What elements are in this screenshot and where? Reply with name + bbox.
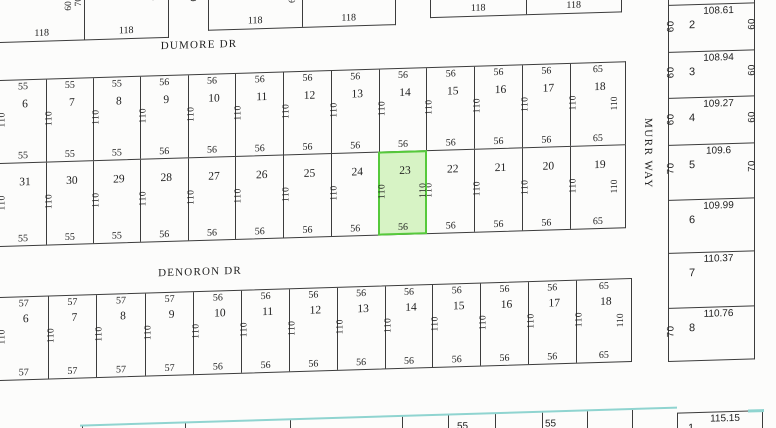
lot-number: 17 bbox=[533, 297, 576, 310]
lot-rear-dim: 56 bbox=[242, 359, 289, 371]
lot-depth-dim: 60 bbox=[747, 18, 758, 30]
lot-cell[interactable]: 56 14 110 56 bbox=[379, 68, 427, 151]
lot-rear-dim: 65 bbox=[577, 349, 631, 362]
lot-number: 28 bbox=[145, 171, 188, 184]
lot-front-dim bbox=[427, 151, 474, 152]
lot-front-dim: 108.61 bbox=[685, 4, 752, 17]
row-edge-depth-dim: 110 bbox=[610, 97, 620, 111]
lot-rear-dim: 56 bbox=[189, 144, 236, 156]
lot-front-dim: 109.99 bbox=[685, 199, 752, 212]
lot-divider bbox=[632, 410, 633, 428]
lot-divider bbox=[402, 417, 403, 428]
lot-cell[interactable]: 56 10 110 56 bbox=[193, 291, 241, 374]
lot-rear-dim: 65 bbox=[571, 215, 625, 228]
lot-cell[interactable]: 108.94 3 60 60 bbox=[669, 49, 754, 98]
top-block-left: 118 118 bbox=[0, 0, 169, 43]
lot-front-dim bbox=[571, 146, 625, 148]
lot-front-dim: 55 bbox=[457, 421, 468, 428]
lot-cell[interactable]: 57 7 110 57 bbox=[48, 295, 97, 378]
lot-depth-dim: 110 bbox=[377, 184, 387, 200]
lot-number: 17 bbox=[527, 82, 570, 95]
lot-rear-dim: 56 bbox=[194, 361, 241, 373]
lot-number: 6 bbox=[689, 214, 695, 226]
lot-front-dim: 56 bbox=[475, 66, 522, 78]
lot-front-dim bbox=[0, 164, 46, 165]
lot-depth-dim: 110 bbox=[288, 321, 298, 337]
lot-rear-dim: 56 bbox=[475, 135, 522, 147]
lot-front-dim bbox=[141, 159, 188, 160]
lot-divider bbox=[542, 413, 543, 428]
lot-cell[interactable]: 118 bbox=[302, 0, 396, 27]
street-label-dumore-dr: DUMORE DR bbox=[153, 38, 245, 53]
lot-cell[interactable]: 26 110 56 bbox=[235, 155, 283, 238]
lot-cell[interactable]: 56 11 110 56 bbox=[235, 72, 283, 155]
lot-number: 8 bbox=[98, 95, 140, 108]
lot-number: 27 bbox=[193, 170, 236, 183]
lot-depth-dim: 110 bbox=[419, 183, 429, 199]
lot-depth-dim: 60 bbox=[747, 64, 758, 76]
lot-rear-dim: 57 bbox=[146, 362, 194, 374]
lot-rear-dim: 55 bbox=[47, 148, 93, 160]
lot-rear-dim: 56 bbox=[380, 221, 427, 233]
lot-depth-dim: 110 bbox=[473, 181, 483, 197]
lot-cell[interactable]: 20 110 56 bbox=[522, 147, 570, 230]
lot-rear-dim: 65 bbox=[571, 132, 625, 145]
lot-cell[interactable]: 55 8 110 55 bbox=[93, 77, 140, 160]
lot-cell[interactable]: 118 bbox=[209, 0, 302, 30]
lot-number: 9 bbox=[145, 93, 188, 106]
lot-cell[interactable]: 118 bbox=[431, 0, 526, 17]
lot-number: 29 bbox=[98, 173, 140, 186]
lot-cell[interactable]: 56 15 110 56 bbox=[432, 284, 480, 367]
lot-rear-dim: 56 bbox=[380, 138, 427, 150]
lot-rear-dim: 56 bbox=[189, 227, 236, 239]
lot-depth-dim: 110 bbox=[46, 328, 56, 344]
lot-rear-dim: 55 bbox=[47, 231, 93, 243]
lot-front-dim: 57 bbox=[0, 298, 48, 310]
lot-front-dim bbox=[47, 162, 93, 163]
lot-front-dim: 57 bbox=[97, 295, 145, 307]
lot-front-dim: 115.15 bbox=[690, 412, 760, 425]
lot-cell[interactable]: 110.76 8 70 bbox=[669, 305, 754, 361]
lot-depth-dim: 60 bbox=[665, 20, 676, 32]
lot-front-dim: 65 bbox=[571, 63, 625, 76]
dim-fragment: 6 bbox=[189, 0, 199, 2]
lot-number: 3 bbox=[689, 66, 695, 78]
lot-cell[interactable]: 28 110 56 bbox=[140, 158, 188, 241]
lot-cell[interactable]: 57 9 110 57 bbox=[145, 292, 194, 375]
lot-depth-dim: 110 bbox=[282, 187, 292, 203]
lot-rear-dim: 56 bbox=[236, 225, 283, 237]
lot-front-dim: 56 bbox=[386, 286, 433, 298]
lot-rear-dim: 56 bbox=[433, 354, 480, 366]
lot-cell[interactable]: 56 13 110 56 bbox=[337, 286, 385, 369]
lot-rear-dim: 56 bbox=[236, 142, 283, 154]
lot-depth-dim: 110 bbox=[431, 316, 441, 332]
lot-rear-dim: 57 bbox=[97, 364, 145, 376]
lot-number: 10 bbox=[198, 307, 241, 320]
lot-front-dim: 56 bbox=[529, 282, 576, 294]
lot-cell[interactable]: 23 110 110 56 bbox=[379, 151, 427, 234]
lot-rear-dim: 55 bbox=[0, 150, 46, 162]
lot-number: 4 bbox=[689, 112, 695, 124]
lot-depth-dim: 110 bbox=[234, 105, 244, 121]
lot-rear-dim: 56 bbox=[290, 358, 337, 370]
lot-divider bbox=[290, 420, 291, 428]
lot-number: 6 bbox=[4, 313, 48, 326]
lot-depth-dim: 110 bbox=[186, 107, 196, 123]
lot-number: 24 bbox=[336, 166, 379, 179]
lot-depth-dim: 110 bbox=[192, 324, 202, 340]
lot-number: 15 bbox=[437, 300, 480, 313]
lot-rear-dim: 57 bbox=[0, 367, 48, 379]
lot-number: 7 bbox=[51, 96, 93, 109]
lot-front-dim: 55 bbox=[0, 81, 46, 93]
lot-front-dim: 55 bbox=[94, 78, 140, 90]
lot-front-dim: 57 bbox=[146, 293, 194, 305]
lot-cell[interactable]: 29 110 55 bbox=[93, 160, 140, 243]
lot-rear-dim: 56 bbox=[386, 355, 433, 367]
lot-front-dim bbox=[475, 149, 522, 150]
lot-front-dim: 56 bbox=[242, 290, 289, 302]
lot-cell[interactable]: 109.99 6 bbox=[669, 197, 754, 253]
lot-front-dim: 56 bbox=[194, 292, 241, 304]
lot-front-dim: 56 bbox=[236, 73, 283, 85]
lot-cell[interactable]: 25 110 56 bbox=[283, 154, 331, 237]
plat-map: 118 118 118 118 118 118 60 70 7 6 67 bbox=[0, 0, 776, 428]
lot-number: 21 bbox=[479, 161, 522, 174]
lot-front-dim: 55 bbox=[545, 418, 556, 428]
lot-number: 1 bbox=[688, 422, 694, 428]
lot-front-dim bbox=[94, 161, 140, 162]
lot-depth-dim: 110 bbox=[139, 191, 149, 207]
lot-front-dim: 56 bbox=[141, 76, 188, 88]
lot-number: 9 bbox=[150, 308, 194, 321]
lot-depth-dim: 110 bbox=[330, 103, 340, 119]
lot-number: 7 bbox=[53, 311, 97, 324]
lot-depth-dim: 110 bbox=[574, 312, 584, 328]
lot-rear-dim: 56 bbox=[529, 351, 576, 363]
lot-rear-dim: 56 bbox=[338, 356, 385, 368]
lot-depth-dim: 60 bbox=[665, 67, 676, 79]
lot-front-dim: 56 bbox=[427, 68, 474, 80]
lot-row-lower: 110 57 6 110 57 57 7 110 57 bbox=[0, 278, 632, 381]
lot-cell[interactable]: 56 16 110 56 bbox=[480, 282, 528, 365]
lot-cell[interactable]: 55 7 110 55 bbox=[46, 78, 93, 161]
lot-rear-dim: 56 bbox=[284, 141, 331, 153]
lot-number: 8 bbox=[689, 322, 695, 334]
lot-cell[interactable]: 56 17 110 56 bbox=[528, 281, 576, 364]
lot-number: 15 bbox=[431, 85, 474, 98]
lot-front-dim: 56 bbox=[290, 289, 337, 301]
lot-depth-dim: 110 bbox=[521, 180, 531, 196]
lot-cell[interactable]: 21 110 56 bbox=[474, 148, 522, 231]
lot-depth-dim: 110 bbox=[92, 193, 102, 209]
lot-depth-dim: 110 bbox=[568, 95, 578, 111]
lot-depth-dim: 110 bbox=[144, 325, 154, 341]
murr-way-lot-column: 108.61 2 60 60 108.94 3 60 60 109.27 4 6… bbox=[668, 0, 755, 362]
lot-cell[interactable]: 56 15 110 56 bbox=[426, 67, 474, 150]
lot-depth-dim: 110 bbox=[521, 97, 531, 113]
lot-rear-dim: 56 bbox=[481, 352, 528, 364]
lot-divider bbox=[587, 411, 588, 428]
lot-cell[interactable]: 109.27 4 60 60 bbox=[669, 95, 754, 145]
lot-divider bbox=[185, 423, 186, 428]
lot-cell[interactable]: 24 110 56 bbox=[331, 153, 379, 236]
lot-cell[interactable]: 31 110 55 bbox=[0, 163, 46, 246]
lot-rear-dim: 56 bbox=[284, 224, 331, 236]
lot-front-dim: 56 bbox=[380, 69, 427, 81]
lot-number: 12 bbox=[288, 89, 331, 102]
lot-front-dim: 110.76 bbox=[685, 307, 752, 320]
lot-front-dim bbox=[332, 154, 379, 155]
lot-number: 10 bbox=[193, 92, 236, 105]
lot-rear-dim: 56 bbox=[523, 217, 570, 229]
lot-depth-dim: 110 bbox=[473, 98, 483, 114]
lot-rear-dim: 56 bbox=[332, 223, 379, 235]
lot-front-dim: 56 bbox=[284, 72, 331, 84]
lot-number: 14 bbox=[384, 86, 427, 99]
lot-depth-dim: 110 bbox=[0, 196, 8, 212]
lot-front-dim: 57 bbox=[49, 296, 97, 308]
lot-cell[interactable]: 56 17 110 56 bbox=[522, 64, 570, 147]
lot-rear-dim: 55 bbox=[94, 147, 140, 159]
lot-front-dim bbox=[284, 155, 331, 156]
lot-front-dim: 108.94 bbox=[685, 51, 752, 64]
top-block-right: 118 118 bbox=[430, 0, 622, 18]
lot-depth-dim: 110 bbox=[92, 110, 102, 126]
lot-number: 18 bbox=[581, 295, 631, 309]
lot-cell[interactable]: 56 9 110 56 bbox=[140, 75, 188, 158]
lot-cell[interactable]: 57 8 110 57 bbox=[96, 294, 145, 377]
lot-depth-dim: 70 bbox=[665, 325, 676, 337]
lot-cell[interactable]: 57 6 110 57 bbox=[0, 297, 48, 380]
dim-fragment: 67 bbox=[288, 0, 298, 3]
lot-number: 2 bbox=[689, 19, 695, 31]
lot-depth-dim: 110 bbox=[330, 186, 340, 202]
lot-depth-dim: 110 bbox=[527, 314, 537, 330]
lot-front-dim bbox=[189, 158, 236, 159]
lot-number: 8 bbox=[101, 310, 145, 323]
lot-depth-dim: 60 bbox=[665, 113, 676, 125]
lot-rear-dim: 56 bbox=[427, 220, 474, 232]
lot-width-label: 118 bbox=[303, 11, 396, 25]
lot-cell[interactable]: 118 bbox=[526, 0, 622, 14]
lot-front-dim bbox=[380, 152, 427, 153]
lot-front-dim: 56 bbox=[332, 71, 379, 83]
lot-number: 19 bbox=[575, 158, 625, 172]
lot-number: 25 bbox=[288, 167, 331, 180]
lot-depth-dim: 110 bbox=[0, 113, 8, 129]
lot-number: 14 bbox=[390, 301, 433, 314]
lot-rear-dim: 56 bbox=[427, 137, 474, 149]
lot-depth-dim: 70 bbox=[665, 163, 676, 175]
lot-front-dim: 56 bbox=[481, 283, 528, 295]
lot-number: 30 bbox=[51, 174, 93, 187]
lot-cell[interactable]: 108.61 2 60 60 bbox=[669, 2, 754, 52]
lot-cell[interactable]: 56 14 110 56 bbox=[385, 285, 433, 368]
lot-width-label: 118 bbox=[527, 0, 622, 12]
lot-depth-dim: 110 bbox=[240, 322, 250, 338]
lot-front-dim: 55 bbox=[47, 79, 93, 91]
lot-cell[interactable]: 56 11 110 56 bbox=[241, 289, 289, 372]
lot-cell[interactable]: 110.37 7 bbox=[669, 250, 754, 308]
lot-rear-dim: 56 bbox=[332, 140, 379, 152]
lot-divider bbox=[495, 414, 496, 428]
lot-cell[interactable]: 109.6 5 70 70 bbox=[669, 142, 754, 200]
lot-depth-dim: 110 bbox=[282, 104, 292, 120]
lot-front-dim: 110.37 bbox=[685, 252, 752, 265]
lot-depth-dim: 110 bbox=[45, 111, 55, 127]
lot-depth-dim: 110 bbox=[479, 315, 489, 331]
lot-depth-dim: 110 bbox=[425, 100, 435, 116]
lot-number: 13 bbox=[342, 302, 385, 315]
street-label-murr-way: MURR WAY bbox=[642, 93, 654, 213]
row-edge-depth-dim: 110 bbox=[610, 180, 620, 194]
map-canvas: 118 118 118 118 118 118 60 70 7 6 67 bbox=[0, 0, 776, 428]
lot-cell[interactable]: 56 10 110 56 bbox=[188, 74, 236, 157]
top-block-middle: 118 118 bbox=[208, 0, 396, 31]
lot-cell[interactable]: 56 13 110 56 bbox=[331, 70, 379, 153]
lot-front-dim: 109.27 bbox=[685, 97, 752, 110]
lot-depth-dim: 110 bbox=[234, 188, 244, 204]
lot-depth-dim: 70 bbox=[747, 160, 758, 172]
lot-number: 16 bbox=[479, 83, 522, 96]
lot-cell[interactable]: 22 110 56 bbox=[426, 150, 474, 233]
lot-number: 12 bbox=[294, 304, 337, 317]
lot-rear-dim: 57 bbox=[49, 365, 97, 377]
lot-rear-dim: 56 bbox=[141, 228, 188, 240]
lot-number: 13 bbox=[336, 88, 379, 101]
lot-depth-dim: 110 bbox=[377, 101, 387, 117]
bottom-row-partial: 55 55 bbox=[80, 407, 677, 428]
lot-divider bbox=[448, 416, 449, 428]
lot-depth-dim: 110 bbox=[568, 178, 578, 194]
lot-number: 22 bbox=[431, 163, 474, 176]
row-edge-depth-dim: 110 bbox=[616, 313, 626, 327]
lot-number: 31 bbox=[4, 176, 46, 189]
lot-front-dim bbox=[236, 156, 283, 157]
lot-cell[interactable]: 30 110 55 bbox=[46, 161, 93, 244]
lot-number: 6 bbox=[4, 98, 46, 111]
lot-rear-dim: 56 bbox=[475, 218, 522, 230]
lot-cell[interactable]: 56 12 110 56 bbox=[289, 288, 337, 371]
lot-cell[interactable]: 56 16 110 56 bbox=[474, 65, 522, 148]
lot-number: 11 bbox=[240, 90, 283, 103]
lot-number: 7 bbox=[689, 267, 695, 279]
lot-front-dim bbox=[523, 148, 570, 149]
lot-cell[interactable]: 27 110 56 bbox=[188, 157, 236, 240]
lot-cell[interactable]: 56 12 110 56 bbox=[283, 71, 331, 154]
lot-depth-dim: 110 bbox=[383, 318, 393, 334]
dim-fragment: 60 bbox=[64, 1, 74, 11]
lot-number: 18 bbox=[575, 80, 625, 94]
lot-rear-dim: 55 bbox=[94, 230, 140, 242]
lot-rear-dim: 56 bbox=[523, 134, 570, 146]
lot-front-dim: 56 bbox=[523, 65, 570, 77]
lot-front-dim: 56 bbox=[189, 75, 236, 87]
lot-depth-dim: 110 bbox=[139, 108, 149, 124]
lot-width-label: 118 bbox=[209, 14, 302, 28]
lot-width-label: 118 bbox=[0, 26, 84, 40]
lot-depth-dim: 110 bbox=[45, 194, 55, 210]
lot-front-dim: 56 bbox=[338, 287, 385, 299]
lot-front-dim: 56 bbox=[433, 285, 480, 297]
lot-front-dim: 109.6 bbox=[685, 144, 752, 157]
lot-number: 26 bbox=[240, 168, 283, 181]
lot-row-middle: 110 31 110 55 30 110 55 bbox=[0, 144, 626, 247]
lot-cell[interactable]: 118 bbox=[84, 0, 169, 39]
lot-depth-dim: 110 bbox=[335, 319, 345, 335]
lot-cell[interactable]: 55 6 110 55 bbox=[0, 80, 46, 163]
lot-cell[interactable]: 115.15 1 bbox=[677, 410, 763, 428]
lot-depth-dim: 110 bbox=[186, 190, 196, 206]
lot-number: 5 bbox=[689, 159, 695, 171]
lot-width-label: 118 bbox=[85, 24, 169, 38]
lot-number: 23 bbox=[384, 164, 427, 177]
lot-rear-dim: 56 bbox=[141, 145, 188, 157]
lot-number: 20 bbox=[527, 160, 570, 173]
lot-depth-dim: 110 bbox=[95, 327, 105, 343]
lot-front-dim: 65 bbox=[577, 280, 631, 293]
lot-depth-dim: 60 bbox=[747, 111, 758, 123]
dim-fragment: 70 bbox=[74, 0, 84, 7]
lot-rear-dim: 55 bbox=[0, 233, 46, 245]
lot-number: 11 bbox=[246, 305, 289, 318]
lot-width-label: 118 bbox=[431, 1, 526, 15]
lot-number: 16 bbox=[485, 298, 528, 311]
lot-depth-dim: 110 bbox=[0, 330, 8, 346]
street-label-denoron-dr: DENORON DR bbox=[147, 264, 253, 279]
